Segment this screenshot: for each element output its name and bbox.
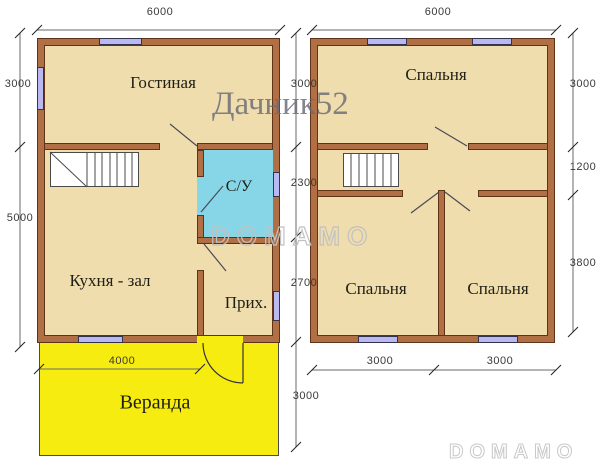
watermark-bottom-right: DOMAMO xyxy=(449,441,578,464)
window-bed-left-bottom xyxy=(358,336,398,343)
dim-floor2-right-middle: 1200 xyxy=(570,161,596,173)
veranda-door-opening xyxy=(197,336,243,343)
floor-plan-canvas: Гостиная С/У Кухня - зал Прих. Веранда С… xyxy=(0,0,602,470)
dim-floor1-right-bath: 2300 xyxy=(291,177,317,189)
label-bedroom-right: Спальня xyxy=(467,279,528,299)
window-bath-right xyxy=(273,172,280,197)
label-veranda: Веранда xyxy=(120,392,191,415)
dim-floor2-top: 6000 xyxy=(425,6,451,18)
wall-living-left xyxy=(44,143,160,150)
dim-floor2-right-upper: 3000 xyxy=(570,78,596,90)
label-bathroom: С/У xyxy=(226,178,252,196)
dim-floor1-left-lower: 5000 xyxy=(7,212,33,224)
wall-bedrooms-divider xyxy=(438,190,445,336)
window-bed-top-2 xyxy=(472,38,512,45)
dim-floor2-bottom-right: 3000 xyxy=(487,355,513,367)
wall-corridor-right xyxy=(478,190,548,197)
dim-floor1-right-hall: 2700 xyxy=(291,277,317,289)
label-kitchen-hall: Кухня - зал xyxy=(69,271,150,291)
wall-bath-left-upper xyxy=(197,150,204,177)
dim-floor1-right-veranda: 3000 xyxy=(293,390,319,402)
dim-floor2-right-lower: 3800 xyxy=(570,257,596,269)
stairs-floor2 xyxy=(343,153,399,187)
label-hallway: Прих. xyxy=(225,293,268,313)
watermark-brand-name: Дачник52 xyxy=(212,86,349,123)
dim-floor1-left-upper: 3000 xyxy=(5,78,31,90)
wall-bath-top xyxy=(197,143,273,150)
label-bedroom-top: Спальня xyxy=(405,65,466,85)
window-kitchen-bottom xyxy=(78,336,123,343)
stairs-floor1 xyxy=(50,152,139,187)
dim-floor2-bottom-left: 3000 xyxy=(367,355,393,367)
watermark-center: DOMAMO xyxy=(211,221,374,252)
wall-bed-top-right xyxy=(468,143,548,150)
window-bed-right-bottom xyxy=(478,336,518,343)
wall-corridor-left xyxy=(317,190,403,197)
dim-floor1-top: 6000 xyxy=(147,6,173,18)
window-living-left xyxy=(37,67,44,110)
window-living-top xyxy=(99,38,142,45)
wall-hall-left xyxy=(197,270,204,336)
dim-veranda-width: 4000 xyxy=(109,355,135,367)
label-bedroom-left: Спальня xyxy=(345,279,406,299)
wall-bed-top-left xyxy=(317,143,428,150)
window-hall-right xyxy=(273,291,280,321)
window-bed-top-1 xyxy=(367,38,407,45)
label-living-room: Гостиная xyxy=(130,73,196,93)
